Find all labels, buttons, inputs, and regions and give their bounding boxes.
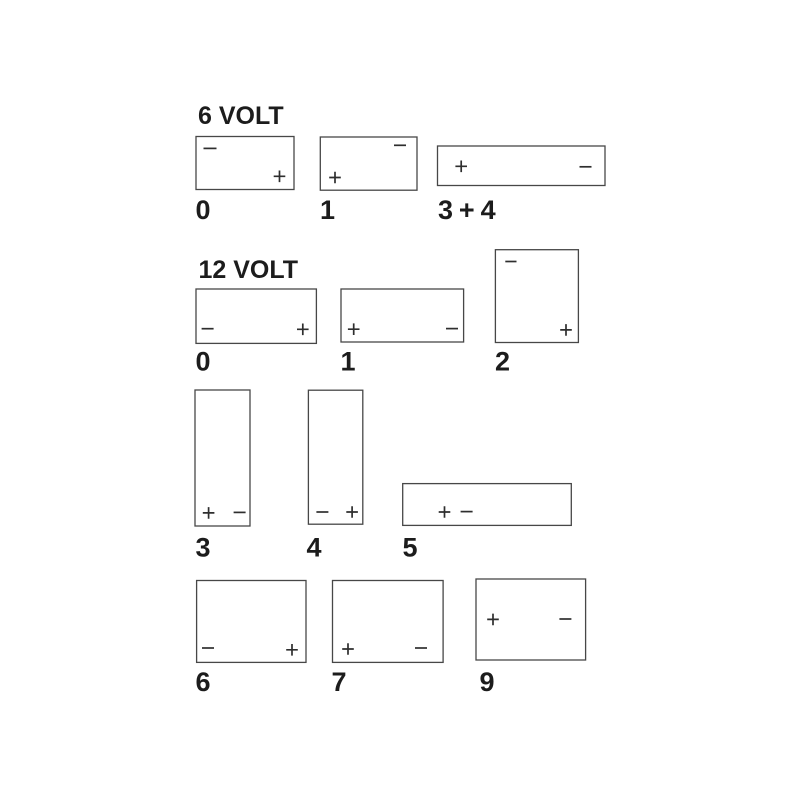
- svg-text:12 VOLT: 12 VOLT: [199, 256, 299, 284]
- svg-text:7: 7: [332, 667, 347, 697]
- svg-text:6: 6: [196, 667, 211, 697]
- svg-text:3 + 4: 3 + 4: [438, 195, 496, 225]
- svg-text:9: 9: [480, 667, 495, 697]
- svg-text:6 VOLT: 6 VOLT: [198, 102, 284, 130]
- svg-text:0: 0: [196, 346, 211, 376]
- svg-text:3: 3: [196, 532, 211, 562]
- svg-text:1: 1: [320, 195, 335, 225]
- svg-text:1: 1: [341, 346, 356, 376]
- svg-text:4: 4: [307, 532, 322, 562]
- svg-text:2: 2: [495, 346, 510, 376]
- svg-text:5: 5: [403, 532, 418, 562]
- svg-text:0: 0: [196, 195, 211, 225]
